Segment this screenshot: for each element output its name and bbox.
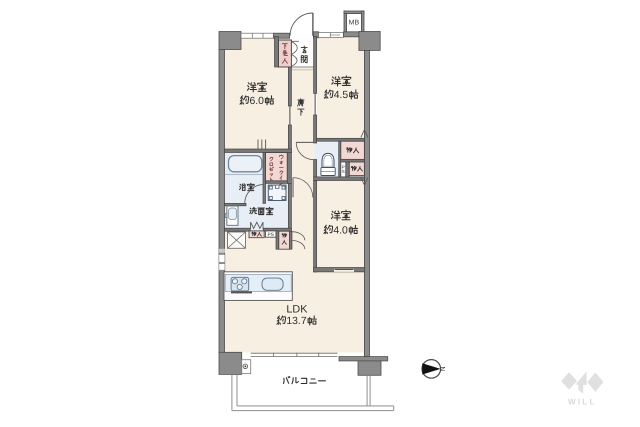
svg-text:6.0: 6.0	[249, 96, 264, 107]
svg-text:MB: MB	[349, 20, 360, 27]
svg-text:4.5: 4.5	[334, 90, 349, 101]
svg-text:N: N	[438, 367, 445, 372]
svg-text:PS: PS	[267, 232, 273, 238]
svg-text:13.7: 13.7	[286, 316, 306, 327]
svg-text:4.0: 4.0	[333, 225, 348, 236]
svg-text:WILL: WILL	[568, 397, 597, 406]
svg-text:LDK: LDK	[286, 303, 308, 315]
svg-text:S: S	[342, 169, 345, 174]
